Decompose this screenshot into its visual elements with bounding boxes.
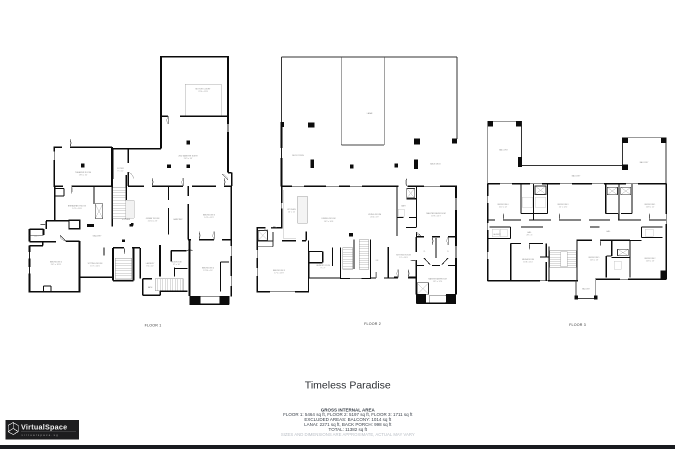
svg-text:LANAI: LANAI <box>367 112 373 115</box>
svg-text:16'2 x 16'8: 16'2 x 16'8 <box>324 221 334 223</box>
svg-text:9' x 12': 9' x 12' <box>117 171 124 173</box>
svg-text:KITCHEN: KITCHEN <box>122 219 131 221</box>
svg-text:GREAT ROOM: GREAT ROOM <box>146 217 160 220</box>
svg-text:BACK DECK: BACK DECK <box>430 162 441 165</box>
svg-text:12'6 x 13': 12'6 x 13' <box>590 260 599 262</box>
svg-text:HALL: HALL <box>606 230 610 233</box>
svg-text:THEATER ROOM: THEATER ROOM <box>75 171 91 174</box>
svg-text:16' x 11': 16' x 11' <box>288 212 296 214</box>
svg-text:12'8 x 13': 12'8 x 13' <box>646 261 655 263</box>
svg-text:14'2 x 13'2: 14'2 x 13'2 <box>204 217 214 219</box>
svg-text:FLOOR 3: FLOOR 3 <box>569 323 586 327</box>
svg-text:13'1 x 12'4: 13'1 x 12'4 <box>433 281 443 283</box>
svg-text:16'8 x 15'2: 16'8 x 15'2 <box>523 262 533 264</box>
svg-text:MEDIA ROOM: MEDIA ROOM <box>522 258 534 261</box>
svg-text:MASTER BEDROOM: MASTER BEDROOM <box>426 212 446 215</box>
svg-text:8'2 x 10': 8'2 x 10' <box>146 265 154 267</box>
svg-text:SIZES AND DIMENSIONS ARE APPRO: SIZES AND DIMENSIONS ARE APPROXIMATE, AC… <box>281 432 415 437</box>
svg-text:20'4 x 19': 20'4 x 19' <box>370 216 379 218</box>
svg-text:20'1 x 16'11: 20'1 x 16'11 <box>51 264 62 266</box>
svg-text:12'8 x 12': 12'8 x 12' <box>646 207 655 209</box>
svg-text:BATH: BATH <box>34 234 39 237</box>
svg-text:9' x 7': 9' x 7' <box>320 268 326 270</box>
svg-text:DECK PORCH: DECK PORCH <box>292 155 305 157</box>
svg-text:13' x 14'6: 13' x 14'6 <box>399 257 408 259</box>
svg-text:CL: CL <box>424 251 426 253</box>
svg-text:18'9 x 16'7: 18'9 x 16'7 <box>431 215 441 217</box>
svg-text:9'1 x 10': 9'1 x 10' <box>173 264 181 266</box>
svg-text:HALL: HALL <box>527 231 531 234</box>
svg-text:Timeless Paradise: Timeless Paradise <box>305 380 391 392</box>
svg-text:BAR/PREP: BAR/PREP <box>173 218 183 221</box>
svg-text:21'10 x 23': 21'10 x 23' <box>148 220 158 222</box>
svg-text:12' x 12'2: 12' x 12'2 <box>559 207 568 209</box>
svg-text:BALCONY: BALCONY <box>572 175 581 178</box>
svg-text:BALCONY: BALCONY <box>499 149 508 152</box>
svg-text:GALLERY: GALLERY <box>93 235 102 238</box>
svg-text:BREAKFAST NOOK: BREAKFAST NOOK <box>68 205 87 208</box>
svg-text:15'7 x 14'6: 15'7 x 14'6 <box>90 266 100 268</box>
svg-text:24'9 x 18': 24'9 x 18' <box>184 158 193 160</box>
svg-text:28' x 5': 28' x 5' <box>526 235 533 237</box>
svg-text:LAUNDRY ROOM: LAUNDRY ROOM <box>316 264 330 267</box>
svg-text:FLOOR 2: FLOOR 2 <box>364 322 381 326</box>
svg-text:14'1 x 10'6: 14'1 x 10'6 <box>72 208 82 210</box>
svg-text:LAUNDRY: LAUNDRY <box>146 262 155 265</box>
svg-text:13'10 x 16': 13'10 x 16' <box>203 270 213 272</box>
svg-text:FLOOR 1: FLOOR 1 <box>145 323 162 327</box>
svg-text:17'1 x 13'9: 17'1 x 13'9 <box>274 273 284 275</box>
svg-text:19'6 x 16': 19'6 x 16' <box>79 174 88 176</box>
svg-text:23'4 x 19'8: 23'4 x 19'8 <box>198 91 208 93</box>
svg-text:BALCONY: BALCONY <box>640 161 649 164</box>
svg-text:11'2 x 12': 11'2 x 12' <box>499 207 508 209</box>
svg-text:virtualspace.sg: virtualspace.sg <box>22 433 60 437</box>
svg-text:2ND MASTER SUITE: 2ND MASTER SUITE <box>178 155 198 158</box>
svg-text:MASTER BATHROOM: MASTER BATHROOM <box>428 278 447 281</box>
svg-text:VirtualSpace: VirtualSpace <box>21 423 67 432</box>
svg-text:CL: CL <box>447 251 449 253</box>
